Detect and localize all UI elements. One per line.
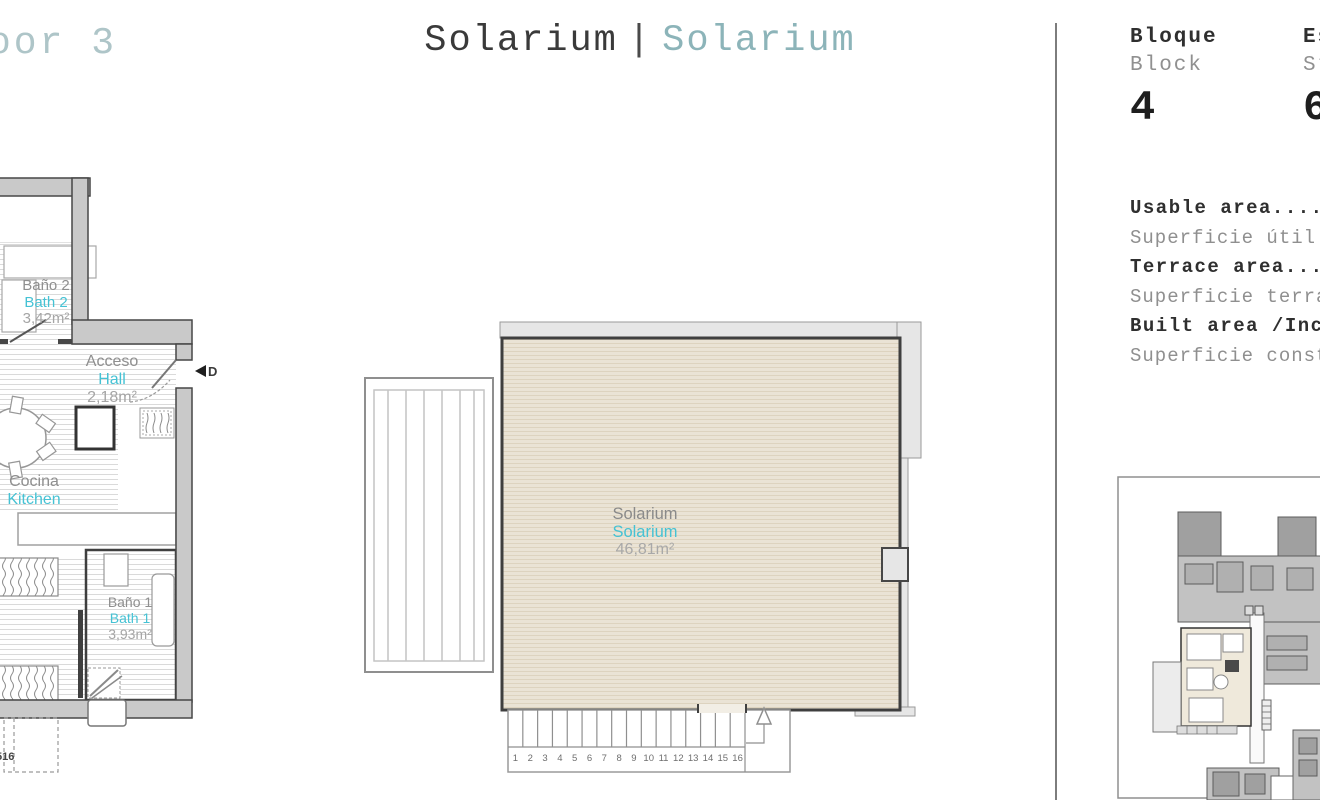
bath2-label-es: Baño 2 [22,277,70,294]
stair-number: 14 [703,753,714,764]
kitchen-label-en: Kitchen [7,491,60,508]
block-value: 4 [1130,86,1218,130]
bed-bottom [0,666,58,700]
area-line: Superficie útil....... [1130,224,1320,254]
bath1-label-es: Baño 1 [108,594,153,610]
stair-number: 7 [602,753,607,764]
stair-number: 13 [688,753,699,764]
bath1-shower [152,574,174,646]
stair-number-partial: 516 [0,751,14,763]
stair-number: 6 [587,753,592,764]
door-marker-letter: D [208,364,217,379]
block-label-en: Block [1130,52,1218,80]
lower-stair-outline: 516 [0,718,58,772]
solarium-area: 46,81m² [616,541,675,558]
stair-number: 11 [659,753,669,764]
door-arrow-icon [195,365,206,377]
area-line: Superficie terraza.... [1130,283,1320,313]
stair-number: 12 [673,753,684,764]
area-line: Built area /Includ.... [1130,312,1320,342]
kitchen-label-es: Cocina [9,473,59,490]
kitchen-sink-unit [140,408,174,438]
deck-opening [698,704,746,713]
stair-number: 8 [616,753,621,764]
block-info: Bloque Block 4 [1130,24,1218,130]
hall-area: 2,18m² [87,389,137,406]
hall-label-en: Hall [98,371,126,388]
bedroom-partition-wall [78,610,83,698]
sheet-title-es: Solarium [424,20,618,62]
bed-top [0,558,58,596]
stair-label-en: Stairs [1303,52,1320,80]
kitchen-column-unit [76,407,114,449]
solarium-floor-plan: 12345678910111213141516 Solarium Solariu… [360,300,960,800]
stair-number: 5 [572,753,577,764]
bath1-label-en: Bath 1 [110,610,151,626]
solarium-labels: Solarium Solarium 46,81m² [612,505,677,558]
area-line: Terrace area.......... [1130,253,1320,283]
area-list: Usable area...........Superficie útil...… [1130,194,1320,371]
stair-number: 15 [717,753,728,764]
bath1-toilet [104,554,128,586]
wall-niche [882,548,908,581]
solarium-label-en: Solarium [612,523,677,541]
bath2-upper-room-floor [0,195,72,243]
block-label-es: Bloque [1130,24,1218,52]
sheet-title-divider: | [618,20,662,62]
bath2-hall-wall-b [58,339,72,344]
stair-number: 4 [557,753,562,764]
site-key-plan [1117,476,1320,800]
pergola [365,378,493,672]
stair-number: 3 [542,753,547,764]
area-line: Usable area........... [1130,194,1320,224]
stair-number: 1 [513,753,518,764]
stair-number: 16 [732,753,743,764]
bath2-hall-wall-a [0,339,8,344]
area-line: Superficie construida. [1130,342,1320,372]
door-direction-marker: D [195,364,217,379]
kitchen-counter [18,513,176,545]
stair-number: 2 [528,753,533,764]
stair-number: 9 [631,753,636,764]
solarium-deck [502,338,900,710]
apartment-floor-plan: D 516 Baño 2 Bath 2 3,42m² Acceso Hall 2… [0,170,220,780]
stair-label-es: Escalera [1303,24,1320,52]
floor-label-partial: oor 3 [0,22,117,65]
bath2-area: 3,42m² [23,310,70,327]
bath2-label-en: Bath 2 [24,294,67,311]
sheet-title: Solarium|Solarium [424,20,856,62]
stair-number: 10 [643,753,654,764]
stair-value: 6 [1303,86,1320,130]
panel-divider-line [1055,23,1057,800]
stair-info: Escalera Stairs 6 [1303,24,1320,130]
sheet-title-en: Solarium [662,20,856,62]
hall-label-es: Acceso [86,353,139,370]
solarium-label-es: Solarium [612,505,677,523]
bath1-area: 3,93m² [108,626,152,642]
entry-threshold [88,700,126,726]
